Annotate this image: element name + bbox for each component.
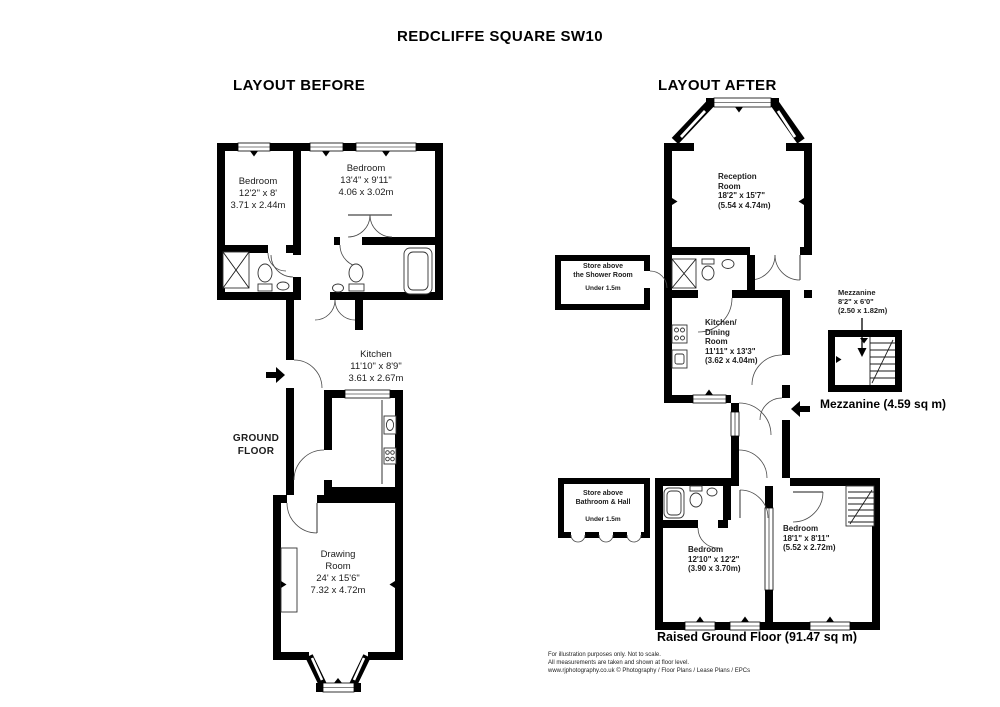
footer-line-2: All measurements are taken and shown at …	[548, 659, 750, 667]
mezzanine-area-label: Mezzanine (4.59 sq m)	[820, 397, 946, 411]
bay-window	[675, 98, 801, 141]
shower-icon	[672, 259, 696, 288]
room-label-before-drawing-room: Drawing Room 24' x 15'6" 7.32 x 4.72m	[307, 549, 369, 597]
room-label-mezzanine: Mezzanine 8'2" x 6'0" (2.50 x 1.82m)	[838, 288, 898, 315]
kitchen-sink-icon	[384, 416, 396, 434]
entrance-arrow-icon	[266, 367, 285, 383]
room-label-before-bedroom-left: Bedroom 12'2" x 8' 3.71 x 2.44m	[214, 176, 302, 212]
chimney-breast	[281, 548, 297, 612]
floorplan-page: REDCLIFFE SQUARE SW10 LAYOUT BEFORE LAYO…	[0, 0, 1000, 707]
layout-before-heading: LAYOUT BEFORE	[233, 77, 365, 94]
store-above-bathroom-label: Store above Bathroom & Hall Under 1.5m	[561, 490, 645, 524]
before-bathroom-fixtures	[223, 248, 432, 294]
sink-icon	[277, 282, 289, 290]
shower-icon	[223, 252, 249, 288]
toilet-icon	[690, 486, 702, 507]
bay-window	[309, 656, 367, 692]
sink-icon	[333, 284, 344, 292]
room-label-after-kitchen-dining: Kitchen/ Dining Room 11'11" x 13'3" (3.6…	[705, 318, 745, 366]
footer-line-3: www.rjphotography.co.uk © Photography / …	[548, 667, 750, 675]
toilet-icon	[702, 259, 714, 280]
before-kitchen-walls	[294, 390, 403, 495]
stairs-icon	[846, 486, 874, 526]
stove-icon	[384, 448, 396, 464]
toilet-icon	[258, 264, 272, 291]
room-label-after-bedroom-right: Bedroom 18'1" x 8'11" (5.52 x 2.72m)	[783, 524, 863, 553]
hall-arrow-icon	[791, 401, 810, 417]
page-title: REDCLIFFE SQUARE SW10	[0, 28, 1000, 45]
bathtub-icon	[664, 488, 684, 518]
room-label-before-bedroom-right: Bedroom 13'4" x 9'11" 4.06 x 3.02m	[316, 163, 416, 199]
after-connector-corridor	[731, 403, 771, 478]
sink-icon	[707, 488, 717, 496]
stove-icon	[672, 325, 687, 343]
store-above-shower-label: Store above the Shower Room Under 1.5m	[559, 263, 647, 293]
before-floorplan	[210, 138, 450, 704]
disclaimer-footer: For illustration purposes only. Not to s…	[548, 651, 750, 675]
footer-line-1: For illustration purposes only. Not to s…	[548, 651, 750, 659]
room-label-after-reception: Reception Room 18'2" x 15'7" (5.54 x 4.7…	[718, 172, 770, 210]
toilet-icon	[349, 264, 364, 291]
room-label-before-kitchen: Kitchen 11'10" x 8'9" 3.61 x 2.67m	[330, 349, 422, 385]
sink-icon	[722, 260, 734, 269]
ground-floor-label: GROUND FLOOR	[224, 432, 288, 458]
room-label-after-bedroom-left: Bedroom 12'10" x 12'2" (3.90 x 3.70m)	[688, 545, 758, 574]
raised-ground-floor-label: Raised Ground Floor (91.47 sq m)	[657, 630, 857, 644]
bathtub-icon	[404, 248, 432, 294]
mezzanine-box	[828, 318, 902, 392]
kitchen-sink-icon	[672, 350, 687, 368]
